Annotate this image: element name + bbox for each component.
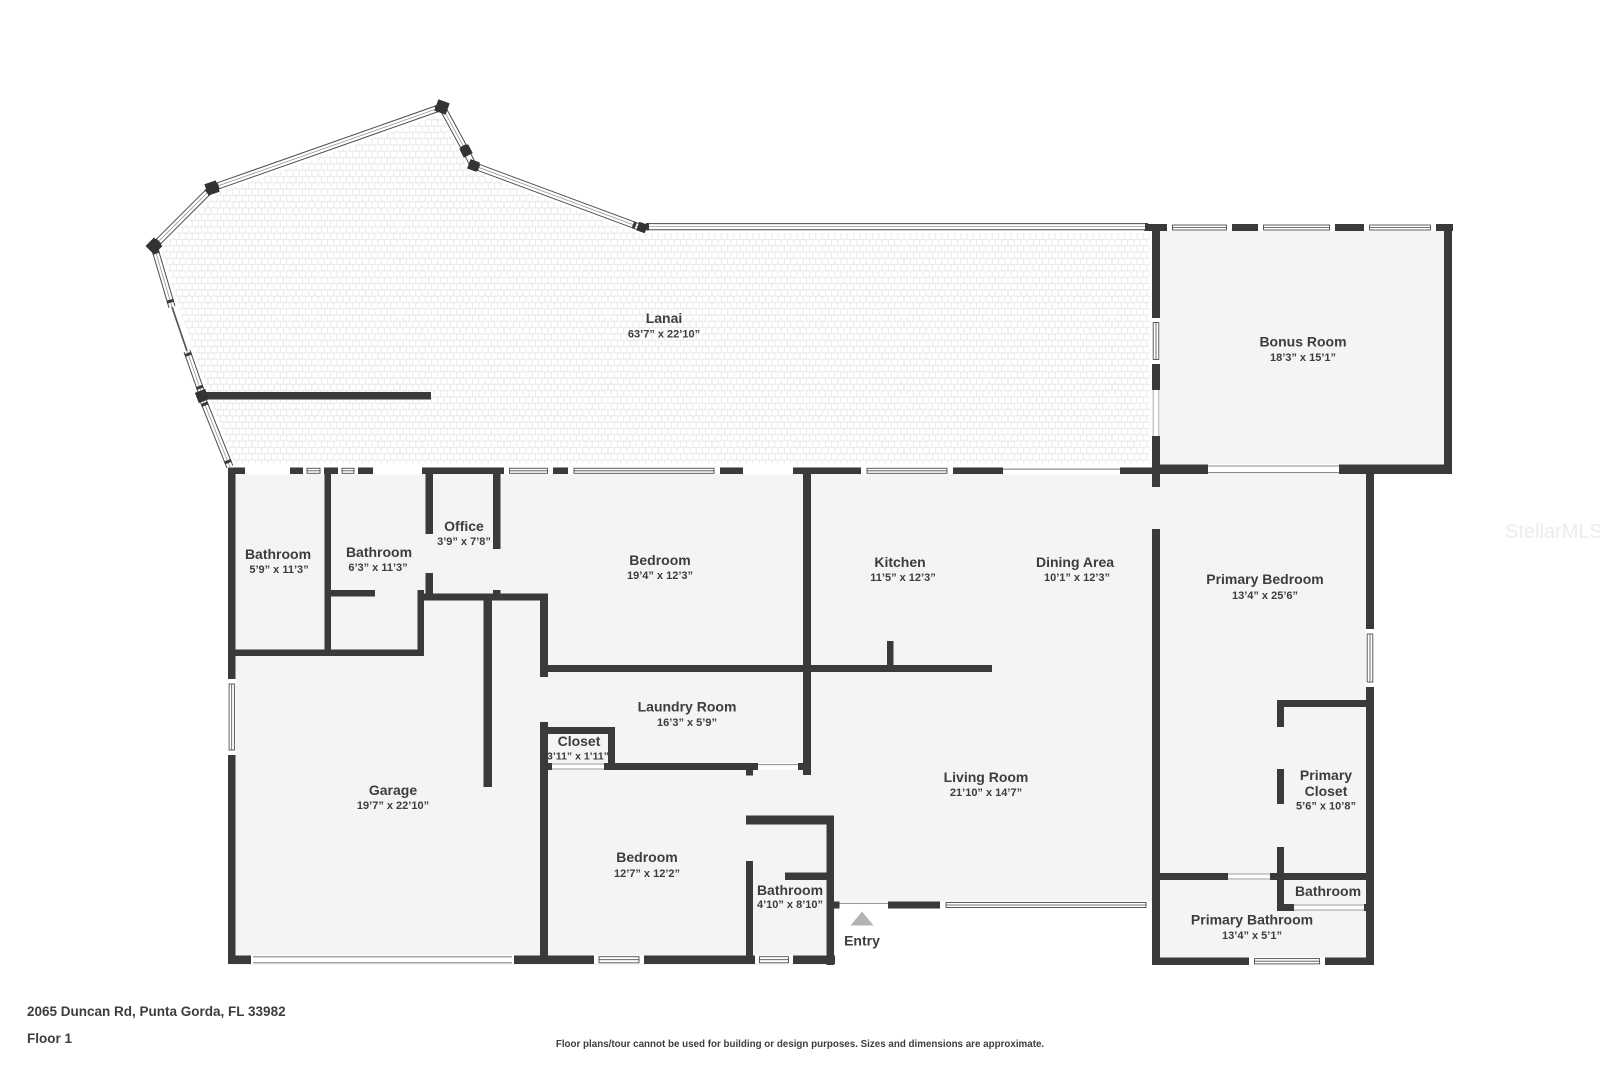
svg-text:12’7” x 12’2”: 12’7” x 12’2”: [614, 868, 680, 880]
svg-text:Office: Office: [444, 518, 484, 534]
svg-text:Bathroom: Bathroom: [1295, 883, 1361, 899]
svg-text:5’9” x 11’3”: 5’9” x 11’3”: [249, 564, 308, 576]
svg-text:3’11” x 1’11”: 3’11” x 1’11”: [547, 751, 609, 763]
svg-text:2065 Duncan Rd, Punta Gorda, F: 2065 Duncan Rd, Punta Gorda, FL 33982: [27, 1004, 286, 1019]
svg-text:Lanai: Lanai: [646, 310, 683, 326]
svg-text:Bathroom: Bathroom: [346, 544, 412, 560]
svg-text:Bedroom: Bedroom: [629, 552, 690, 568]
svg-text:Floor 1: Floor 1: [27, 1031, 72, 1046]
svg-text:3’9” x 7’8”: 3’9” x 7’8”: [437, 536, 491, 548]
svg-text:16’3” x 5’9”: 16’3” x 5’9”: [657, 717, 717, 729]
svg-text:19’4” x 12’3”: 19’4” x 12’3”: [627, 570, 693, 582]
svg-text:Bathroom: Bathroom: [245, 546, 311, 562]
svg-text:19’7” x 22’10”: 19’7” x 22’10”: [357, 800, 429, 812]
svg-text:Primary Bathroom: Primary Bathroom: [1191, 912, 1313, 928]
svg-text:18’3” x 15’1”: 18’3” x 15’1”: [1270, 352, 1336, 364]
svg-text:Floor plans/tour cannot be use: Floor plans/tour cannot be used for buil…: [556, 1039, 1045, 1050]
svg-text:Kitchen: Kitchen: [874, 554, 925, 570]
svg-text:13’4” x 5’1”: 13’4” x 5’1”: [1222, 930, 1282, 942]
svg-text:13’4” x 25’6”: 13’4” x 25’6”: [1232, 590, 1298, 602]
svg-text:21’10” x 14’7”: 21’10” x 14’7”: [950, 787, 1022, 799]
svg-text:Bathroom: Bathroom: [757, 882, 823, 898]
svg-text:6’3” x 11’3”: 6’3” x 11’3”: [348, 562, 407, 574]
svg-text:Closet: Closet: [1305, 783, 1348, 799]
svg-text:11’5” x 12’3”: 11’5” x 12’3”: [870, 572, 935, 584]
svg-text:Primary: Primary: [1300, 767, 1352, 783]
svg-text:Closet: Closet: [558, 733, 601, 749]
svg-text:Bedroom: Bedroom: [616, 849, 677, 865]
svg-text:10’1” x 12’3”: 10’1” x 12’3”: [1044, 572, 1110, 584]
svg-text:Laundry Room: Laundry Room: [638, 699, 737, 715]
svg-text:63’7” x 22’10”: 63’7” x 22’10”: [628, 329, 700, 341]
svg-text:4’10” x 8’10”: 4’10” x 8’10”: [757, 899, 823, 911]
svg-text:Dining Area: Dining Area: [1036, 554, 1114, 570]
svg-text:Primary Bedroom: Primary Bedroom: [1206, 571, 1323, 587]
svg-text:Garage: Garage: [369, 782, 417, 798]
svg-text:5’6” x 10’8”: 5’6” x 10’8”: [1296, 801, 1356, 813]
svg-text:Bonus Room: Bonus Room: [1259, 334, 1346, 350]
svg-text:StellarMLS: StellarMLS: [1505, 521, 1600, 543]
svg-text:Living Room: Living Room: [944, 769, 1029, 785]
svg-text:Entry: Entry: [844, 933, 880, 949]
